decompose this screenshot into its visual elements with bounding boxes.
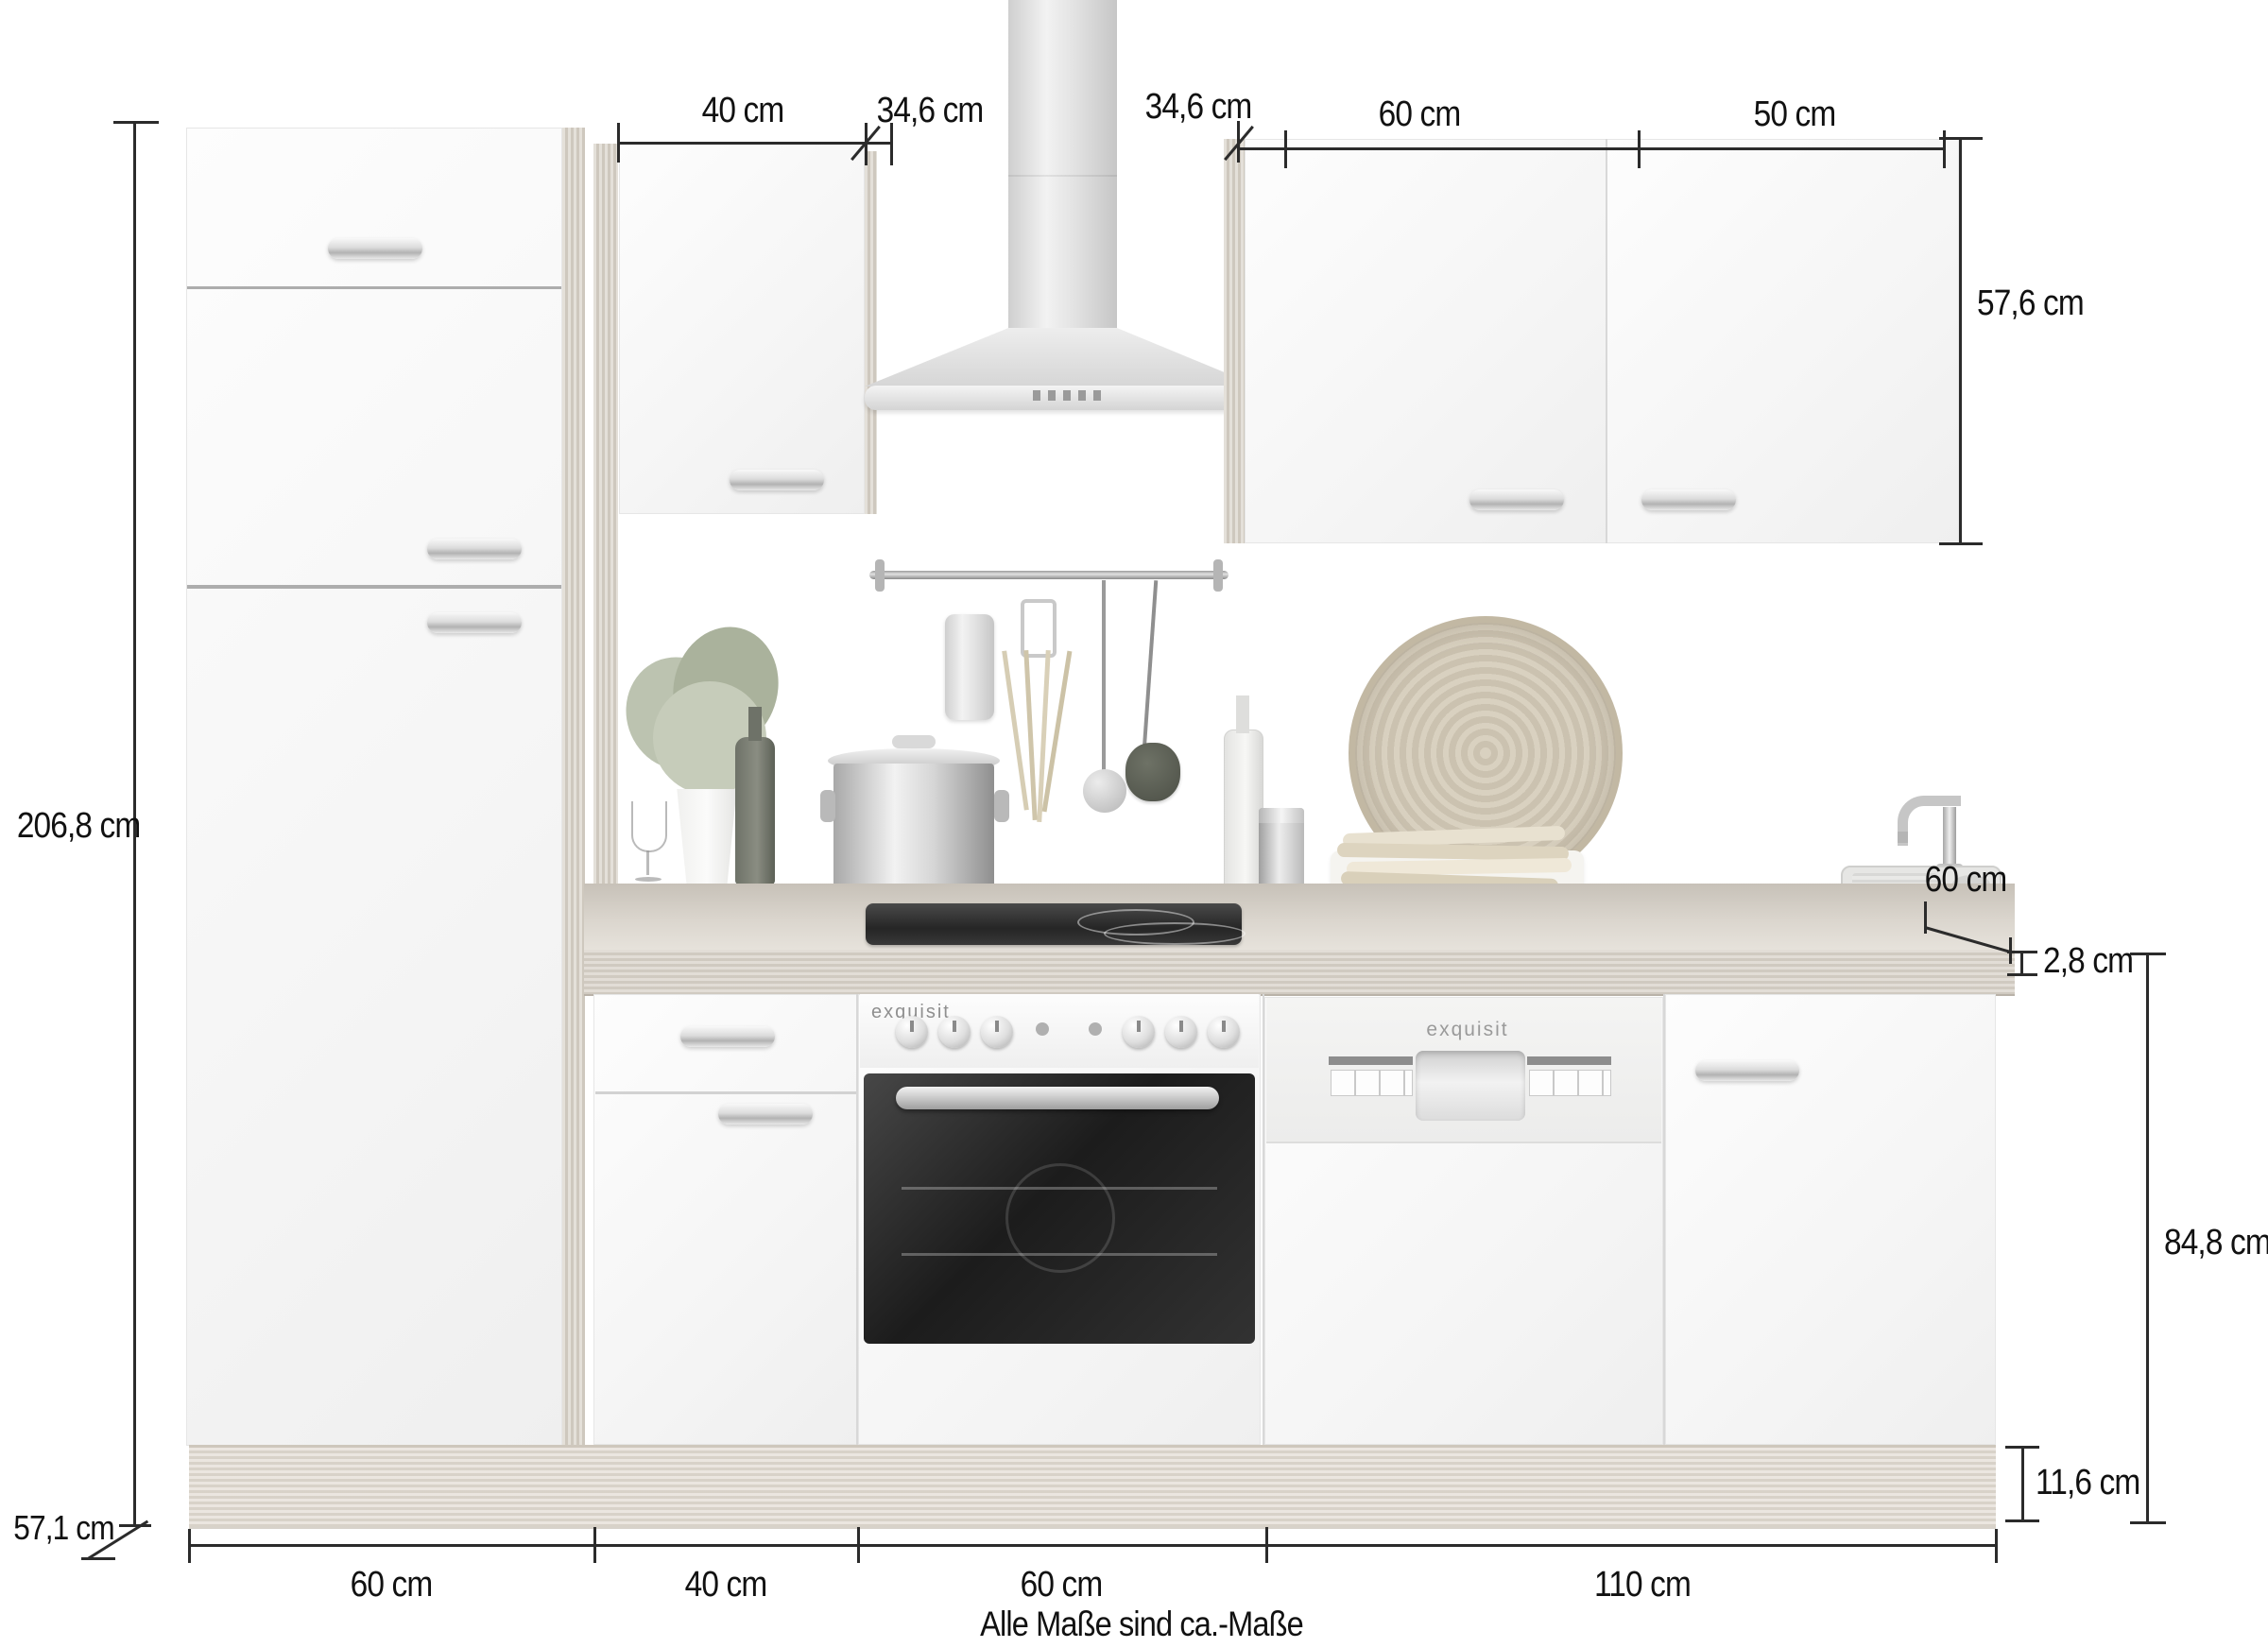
hood-chimney <box>1008 0 1117 331</box>
footnote: Alle Maße sind ca.-Maße <box>980 1606 1303 1643</box>
dishwasher-buttons-right <box>1529 1070 1611 1096</box>
dim-label-50-top: 50 cm <box>1754 96 1836 134</box>
dim-line-346-left <box>830 142 892 145</box>
dim-label-40: 40 cm <box>702 93 784 130</box>
wall-cabinet-40-side <box>865 151 877 514</box>
dishwasher-program-bar-right <box>1527 1056 1611 1065</box>
herb-plant-pot <box>673 789 741 884</box>
dim-bar <box>2007 973 2037 976</box>
dim-label-60b: 60 cm <box>1021 1567 1103 1605</box>
base-40-drawer-divider <box>595 1091 856 1094</box>
oven-knob-4 <box>1123 1016 1155 1048</box>
dim-label-576: 57,6 cm <box>1977 285 2084 323</box>
plinth <box>189 1445 1996 1529</box>
dim-line-576 <box>1959 137 1962 545</box>
dim-line-116 <box>2021 1446 2024 1521</box>
wall-cabinet-40 <box>619 144 865 514</box>
dim-tick <box>188 1529 191 1563</box>
dim-label-2068: 206,8 cm <box>17 808 127 846</box>
oil-bottle <box>1224 730 1263 909</box>
wall-cabinet-40-handle <box>730 470 824 490</box>
fridge-lower-door-handle <box>427 612 522 633</box>
hood-chimney-seam <box>1008 175 1117 177</box>
base-gap-1 <box>856 994 858 1445</box>
hanging-skimmer <box>1120 580 1186 835</box>
dim-label-346-right: 34,6 cm <box>1145 89 1252 127</box>
kitchen-dimension-diagram: exquisit exquisit 40 cm 34,6 cm 34,6 cm <box>0 0 2268 1648</box>
oven-knob-3 <box>981 1016 1013 1048</box>
tall-cabinet-divider-lower <box>187 585 561 589</box>
base-gap-3 <box>1663 994 1665 1445</box>
base-cabinet-40 <box>593 994 858 1445</box>
dim-bar <box>2130 1521 2166 1524</box>
oil-bottle-neck <box>1236 695 1249 733</box>
oven-knob-2 <box>938 1016 971 1048</box>
dim-label-346-left: 34,6 cm <box>877 93 984 130</box>
dim-bar <box>81 1557 115 1560</box>
tall-cabinet <box>186 128 562 1446</box>
dark-bottle <box>735 737 775 884</box>
oven-door-glass <box>864 1073 1255 1344</box>
dim-tick <box>1284 130 1287 168</box>
oven-indicator-light-2 <box>1089 1022 1102 1036</box>
sink-base-handle <box>1695 1060 1799 1081</box>
worktop-surface <box>584 884 2015 952</box>
base-40-drawer-handle <box>680 1026 775 1047</box>
oven-knob-6 <box>1208 1016 1240 1048</box>
dim-tick <box>1265 1527 1268 1563</box>
dark-bottle-neck <box>748 707 762 741</box>
dim-label-110: 110 cm <box>1594 1567 1691 1605</box>
dim-label-60-top: 60 cm <box>1379 96 1461 134</box>
dim-tick <box>617 123 620 163</box>
dim-label-848: 84,8 cm <box>2164 1225 2268 1262</box>
dim-label-28: 2,8 cm <box>2043 943 2133 981</box>
dishwasher-handle-recess <box>1416 1051 1525 1121</box>
oven-knob-1 <box>896 1016 928 1048</box>
tall-cabinet-side-panel <box>562 128 585 1446</box>
wall-cabinet-gap <box>1606 139 1607 543</box>
dim-bar <box>2005 1519 2039 1522</box>
wall-cabinet-60 <box>1245 139 1606 543</box>
dim-tick <box>1995 1529 1998 1563</box>
dim-label-60-depth: 60 cm <box>1925 862 2007 900</box>
dim-label-116: 11,6 cm <box>2036 1465 2139 1502</box>
oven-knob-5 <box>1165 1016 1197 1048</box>
dim-line-28 <box>2020 951 2023 975</box>
dishwasher-buttons-left <box>1331 1070 1413 1096</box>
dishwasher-program-bar-left <box>1329 1056 1413 1065</box>
wall-cabinet-right-side-panel <box>1224 139 1245 543</box>
dim-label-40b: 40 cm <box>685 1567 767 1605</box>
dim-tick <box>593 1527 596 1563</box>
hanging-grater <box>945 614 994 720</box>
dim-label-60a: 60 cm <box>351 1567 433 1605</box>
cooktop-ring-2 <box>1104 922 1246 945</box>
rail-bracket-right <box>1213 559 1223 592</box>
dim-bar <box>1939 542 1983 545</box>
base-gap-2 <box>1263 994 1264 1445</box>
dim-label-571: 57,1 cm <box>13 1510 98 1546</box>
side-filler-panel <box>593 144 618 950</box>
dim-line-346-right <box>1239 147 1286 150</box>
worktop-front-edge <box>584 950 2015 996</box>
dim-line-bottom <box>189 1544 1997 1547</box>
utensil-rail <box>869 571 1228 579</box>
rail-bracket-left <box>875 559 885 592</box>
tall-cabinet-top-door-handle <box>328 238 422 259</box>
oven-indicator-light-1 <box>1036 1022 1049 1036</box>
dim-tick <box>1638 130 1641 168</box>
dim-tick <box>857 1527 860 1563</box>
hood-flare <box>865 328 1259 386</box>
wine-glass <box>629 801 667 884</box>
dim-line-60-50 <box>1285 147 1945 150</box>
dishwasher-brand-logo: exquisit <box>1426 1019 1508 1041</box>
dim-tick <box>1943 130 1946 168</box>
tall-cabinet-divider-upper <box>187 286 561 289</box>
wall-cabinet-60-handle <box>1469 489 1564 510</box>
dim-line-848 <box>2146 953 2149 1523</box>
wall-cabinet-50-handle <box>1641 489 1736 510</box>
wall-cabinet-50 <box>1606 139 1959 543</box>
base-40-door-handle <box>718 1104 813 1124</box>
dim-bar <box>113 121 159 124</box>
hanging-spaghetti <box>1004 593 1079 811</box>
fridge-door-handle <box>427 539 522 559</box>
hood-control-buttons <box>1033 390 1101 401</box>
oven-door-handle <box>896 1087 1219 1109</box>
